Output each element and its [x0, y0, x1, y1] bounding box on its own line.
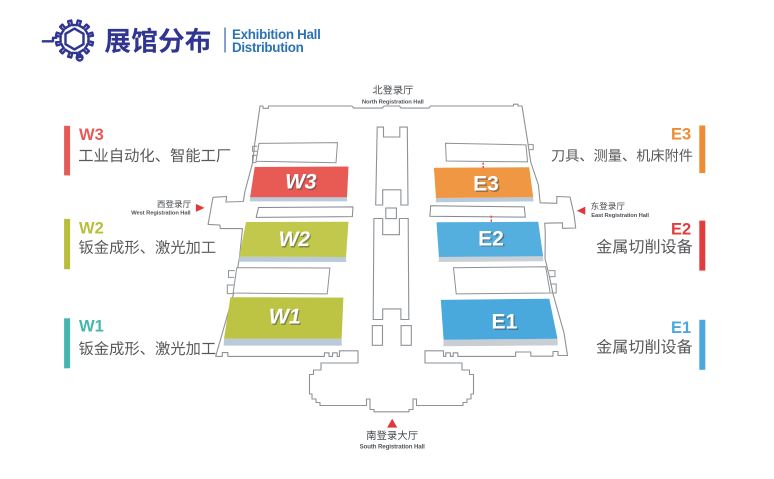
svg-text:South Registration Hall: South Registration Hall — [360, 444, 425, 451]
svg-text:Distribution: Distribution — [232, 40, 304, 55]
svg-text:E3: E3 — [473, 173, 499, 196]
svg-text:W2: W2 — [79, 219, 104, 237]
svg-text:North Registration Hall: North Registration Hall — [362, 99, 424, 105]
svg-text:W3: W3 — [79, 126, 104, 144]
svg-text:E1: E1 — [671, 319, 691, 337]
svg-text:East Registration Hall: East Registration Hall — [591, 213, 649, 219]
svg-text:W1: W1 — [267, 304, 304, 329]
svg-text:E2: E2 — [671, 221, 691, 239]
svg-text:E2: E2 — [478, 227, 504, 250]
svg-text:W1: W1 — [79, 317, 104, 335]
svg-text:E3: E3 — [671, 125, 691, 143]
svg-text:W3: W3 — [283, 171, 319, 194]
svg-text:W2: W2 — [277, 228, 313, 251]
svg-text:E1: E1 — [492, 311, 518, 334]
svg-text:West Registration Hall: West Registration Hall — [131, 210, 191, 216]
